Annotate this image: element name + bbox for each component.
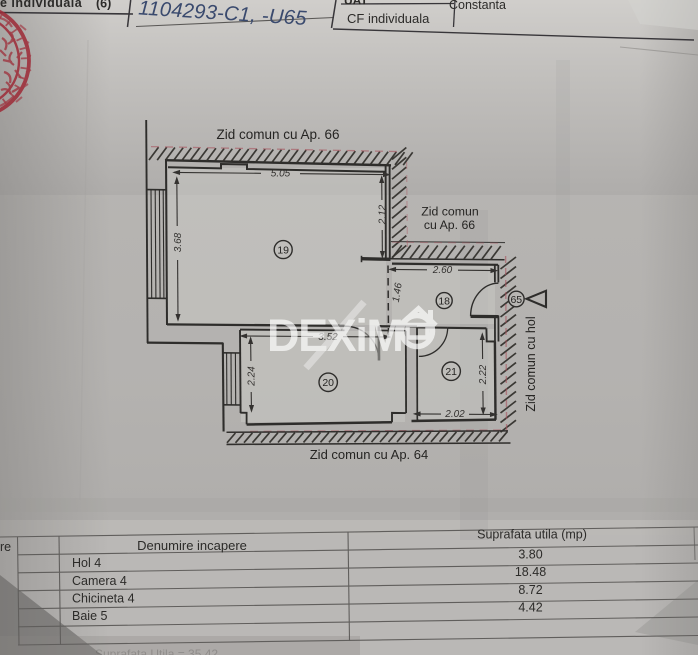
svg-text:Chicineta 4: Chicineta 4 — [72, 592, 135, 606]
svg-text:re: re — [0, 540, 11, 554]
svg-text:(6): (6) — [96, 0, 111, 11]
svg-text:2.22: 2.22 — [478, 364, 489, 385]
svg-text:Suprafata Utila = 35.42: Suprafata Utila = 35.42 — [95, 647, 218, 655]
svg-text:20: 20 — [322, 377, 334, 389]
svg-text:Hol 4: Hol 4 — [72, 556, 101, 570]
svg-text:Suprafata utila (mp): Suprafata utila (mp) — [477, 528, 587, 542]
svg-text:Zid comun: Zid comun — [421, 205, 479, 219]
svg-text:2.60: 2.60 — [432, 265, 453, 276]
svg-text:Constanta: Constanta — [449, 0, 506, 12]
svg-text:2.12: 2.12 — [378, 204, 389, 225]
svg-text:Baie 5: Baie 5 — [72, 609, 107, 623]
svg-text:3.68: 3.68 — [173, 232, 184, 252]
svg-text:Zid comun cu Ap. 66: Zid comun cu Ap. 66 — [216, 127, 339, 142]
svg-text:Camera 4: Camera 4 — [72, 574, 127, 588]
svg-text:2.24: 2.24 — [247, 366, 258, 387]
svg-text:Zid comun cu hol: Zid comun cu hol — [524, 316, 538, 411]
svg-text:2.02: 2.02 — [444, 409, 465, 420]
svg-text:18.48: 18.48 — [515, 565, 546, 579]
svg-text:21: 21 — [445, 366, 457, 378]
svg-text:4.42: 4.42 — [518, 601, 542, 615]
svg-text:18: 18 — [438, 295, 450, 307]
svg-text:5.05: 5.05 — [271, 168, 291, 179]
svg-text:8.72: 8.72 — [518, 583, 542, 597]
svg-text:Zid comun cu Ap. 64: Zid comun cu Ap. 64 — [310, 447, 429, 462]
svg-text:3.80: 3.80 — [518, 548, 542, 562]
svg-text:e individuala: e individuala — [0, 0, 83, 10]
svg-text:CF individuala: CF individuala — [347, 11, 430, 26]
svg-text:Denumire incapere: Denumire incapere — [137, 538, 247, 553]
svg-text:65: 65 — [510, 294, 522, 306]
svg-text:UAT: UAT — [344, 0, 368, 8]
svg-text:19: 19 — [277, 244, 289, 256]
svg-text:cu Ap. 66: cu Ap. 66 — [424, 218, 475, 232]
